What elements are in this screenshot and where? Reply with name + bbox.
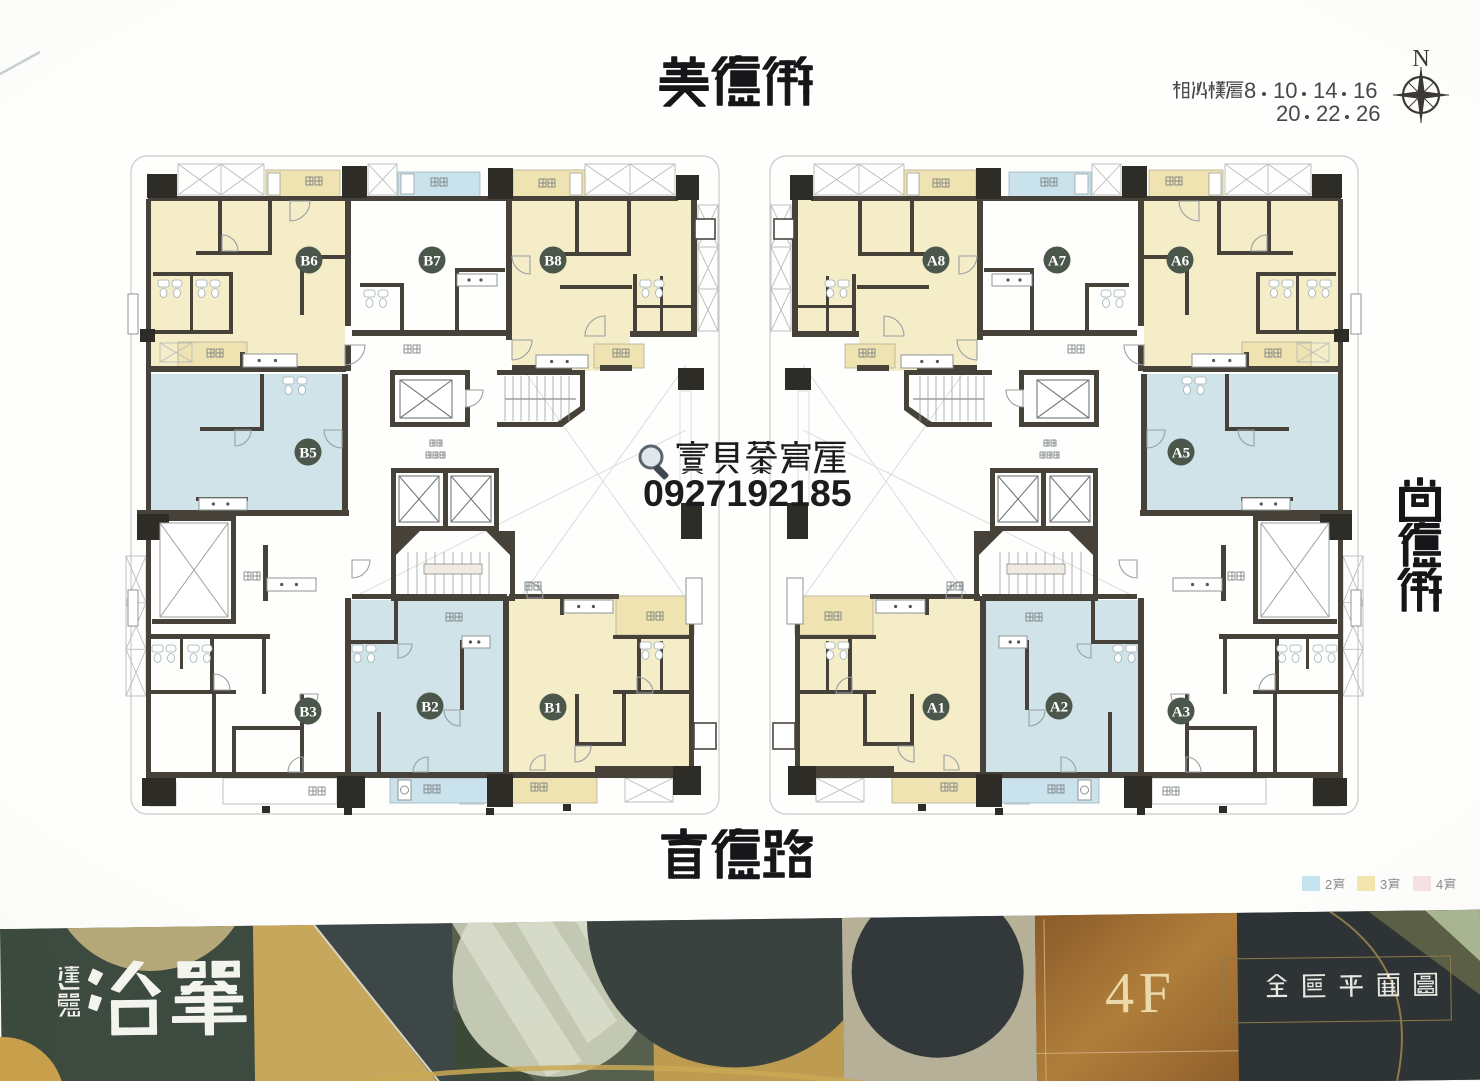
svg-text:8: 8	[1244, 78, 1256, 103]
svg-text:A3: A3	[1172, 705, 1190, 721]
svg-text:A5: A5	[1172, 446, 1190, 462]
svg-text:10: 10	[1273, 78, 1297, 103]
svg-text:A8: A8	[927, 254, 945, 270]
svg-text:B7: B7	[423, 254, 441, 270]
svg-text:16: 16	[1353, 78, 1377, 103]
svg-text:A6: A6	[1171, 254, 1190, 270]
svg-text:B2: B2	[421, 700, 439, 716]
svg-text:A2: A2	[1050, 700, 1068, 716]
svg-text:B3: B3	[299, 705, 317, 721]
svg-text:2: 2	[1325, 877, 1332, 892]
svg-text:0927192185: 0927192185	[643, 472, 852, 514]
svg-text:B6: B6	[300, 254, 318, 270]
svg-text:B8: B8	[544, 254, 562, 270]
svg-text:B5: B5	[299, 446, 317, 462]
svg-text:22: 22	[1316, 101, 1340, 126]
svg-text:4: 4	[1436, 877, 1443, 892]
svg-text:26: 26	[1356, 101, 1380, 126]
svg-text:A7: A7	[1048, 254, 1067, 270]
svg-text:14: 14	[1313, 78, 1337, 103]
svg-text:20: 20	[1276, 101, 1300, 126]
svg-text:4F: 4F	[1105, 960, 1177, 1026]
svg-text:A1: A1	[927, 701, 945, 717]
svg-text:B1: B1	[544, 701, 562, 717]
svg-text:N: N	[1412, 46, 1429, 72]
svg-text:3: 3	[1380, 877, 1387, 892]
